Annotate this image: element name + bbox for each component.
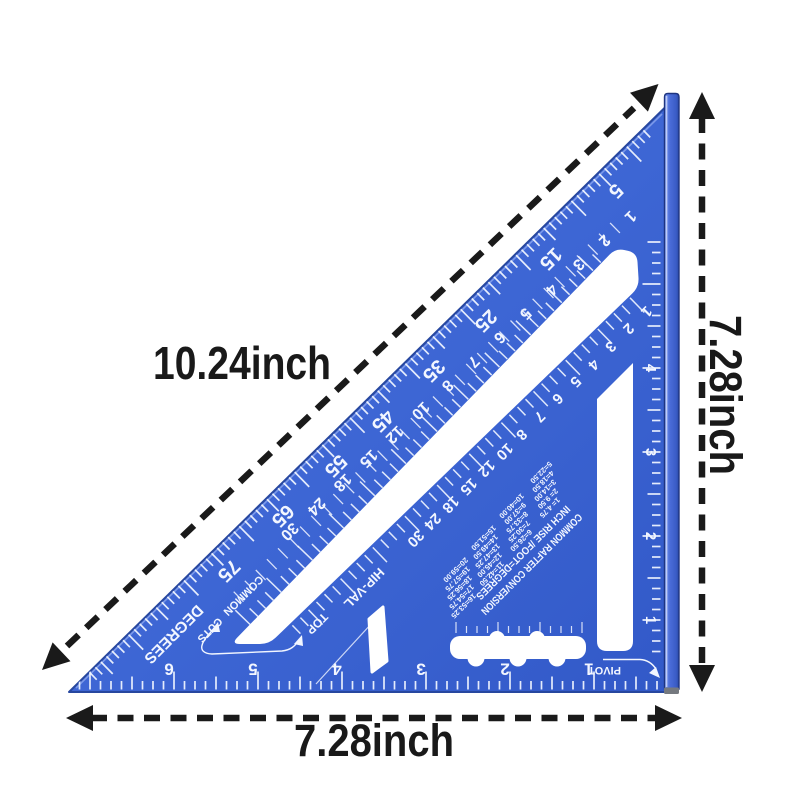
svg-text:PIVOT: PIVOT <box>588 664 621 676</box>
svg-text:2: 2 <box>642 532 659 540</box>
svg-text:6: 6 <box>164 660 173 679</box>
svg-text:1: 1 <box>642 616 659 624</box>
svg-text:4: 4 <box>642 364 659 373</box>
svg-text:4: 4 <box>332 660 342 679</box>
svg-text:7.28inch: 7.28inch <box>294 715 454 766</box>
svg-text:10.24inch: 10.24inch <box>153 337 331 389</box>
svg-text:7.28inch: 7.28inch <box>700 315 751 475</box>
svg-text:2: 2 <box>500 660 509 679</box>
svg-text:3: 3 <box>416 660 425 679</box>
svg-text:5: 5 <box>248 660 257 679</box>
svg-text:3: 3 <box>642 448 659 456</box>
